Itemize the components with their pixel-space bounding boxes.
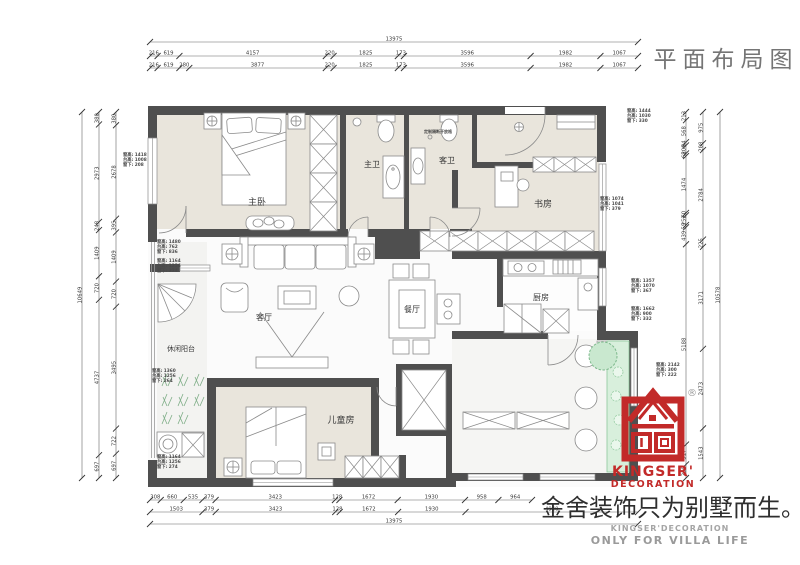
window-spec-note: 窗高: 2142台高: 300窗下: 222 xyxy=(656,361,680,378)
sink xyxy=(553,260,581,274)
svg-text:220: 220 xyxy=(325,51,336,57)
svg-text:568: 568 xyxy=(682,126,688,137)
svg-text:619: 619 xyxy=(163,63,173,69)
svg-text:1930: 1930 xyxy=(425,495,439,501)
brand-slogan: 金舍装饰只为别墅而生。 xyxy=(541,488,800,523)
svg-text:1067: 1067 xyxy=(612,63,625,69)
window-spec-note: 窗高: 1662台高: 900窗下: 332 xyxy=(631,305,655,322)
room-label: 主卧 xyxy=(248,196,266,208)
svg-text:216: 216 xyxy=(149,63,160,69)
registered-mark: ® xyxy=(687,388,697,399)
armchair xyxy=(221,283,248,312)
svg-text:439: 439 xyxy=(682,231,688,241)
room-label: 休闲阳台 xyxy=(167,344,195,353)
svg-text:697: 697 xyxy=(112,461,118,471)
svg-text:379: 379 xyxy=(204,495,214,501)
svg-text:535: 535 xyxy=(188,495,198,501)
svg-text:1672: 1672 xyxy=(362,507,375,513)
chair xyxy=(393,340,409,354)
svg-text:173: 173 xyxy=(396,51,406,57)
chair xyxy=(413,340,429,354)
svg-text:379: 379 xyxy=(204,507,214,513)
svg-text:1543: 1543 xyxy=(699,446,705,459)
svg-text:2473: 2473 xyxy=(699,382,705,395)
svg-text:225: 225 xyxy=(699,238,705,248)
svg-text:10649: 10649 xyxy=(78,287,84,304)
svg-text:128: 128 xyxy=(332,507,343,513)
tv-console xyxy=(256,357,328,368)
brand-en-line2: ONLY FOR VILLA LIFE xyxy=(540,534,800,547)
window-spec-note: 窗高: 1074台高: 1041窗下: 379 xyxy=(600,195,624,212)
sideboard xyxy=(437,294,460,324)
svg-text:1474: 1474 xyxy=(682,177,688,191)
stool xyxy=(575,429,597,451)
floor-drain xyxy=(353,118,361,126)
svg-text:208: 208 xyxy=(699,141,705,152)
stove xyxy=(508,261,544,274)
svg-text:1067: 1067 xyxy=(612,51,625,57)
svg-text:958: 958 xyxy=(477,495,488,501)
svg-text:3596: 3596 xyxy=(461,51,475,57)
round-table xyxy=(339,286,359,306)
room-label: 客卫 xyxy=(439,155,455,165)
svg-text:3596: 3596 xyxy=(461,63,475,69)
svg-text:1825: 1825 xyxy=(359,51,372,57)
svg-text:2678: 2678 xyxy=(112,165,118,179)
window-spec-note: 窗高: 1164台高: 1256窗下: 274 xyxy=(157,257,181,274)
svg-text:1930: 1930 xyxy=(425,507,439,513)
svg-text:10578: 10578 xyxy=(716,286,722,303)
svg-text:380: 380 xyxy=(112,113,118,124)
floor-plan-page: 1397521661941572201825173359619821067216… xyxy=(0,0,800,565)
svg-text:13975: 13975 xyxy=(386,519,403,525)
sofa-back xyxy=(246,237,350,245)
svg-text:3171: 3171 xyxy=(699,291,705,304)
svg-text:720: 720 xyxy=(112,288,118,299)
svg-text:248: 248 xyxy=(95,220,101,231)
svg-text:975: 975 xyxy=(699,123,705,133)
svg-text:722: 722 xyxy=(112,436,118,446)
svg-text:660: 660 xyxy=(167,495,178,501)
brand-en-line1: KINGSER'DECORATION xyxy=(540,524,800,533)
svg-text:280: 280 xyxy=(179,63,190,69)
svg-text:68: 68 xyxy=(682,151,688,158)
window-spec-note: 窗高: 1444台高: 1030窗下: 330 xyxy=(627,107,651,124)
svg-text:59: 59 xyxy=(682,223,688,230)
svg-text:697: 697 xyxy=(95,462,101,472)
room-label: 儿童房 xyxy=(327,414,354,426)
svg-text:128: 128 xyxy=(332,495,343,501)
svg-text:720: 720 xyxy=(95,282,101,293)
brand-name: KINGSER' xyxy=(603,464,703,480)
svg-text:395: 395 xyxy=(112,220,118,230)
svg-text:4157: 4157 xyxy=(246,51,259,57)
room-label: 厨房 xyxy=(533,292,549,302)
svg-text:216: 216 xyxy=(149,51,160,57)
svg-text:3423: 3423 xyxy=(269,507,282,513)
svg-text:1409: 1409 xyxy=(112,250,118,263)
svg-text:1672: 1672 xyxy=(362,495,375,501)
svg-text:619: 619 xyxy=(163,51,173,57)
svg-text:308: 308 xyxy=(150,495,161,501)
window-spec-note: 窗高: 1480台高: 762窗下: 836 xyxy=(157,238,181,255)
svg-text:3423: 3423 xyxy=(269,495,282,501)
svg-text:3495: 3495 xyxy=(112,361,118,374)
window-spec-note: 窗高: 1164台高: 1256窗下: 274 xyxy=(157,453,181,470)
svg-text:220: 220 xyxy=(325,63,336,69)
svg-text:173: 173 xyxy=(396,63,406,69)
svg-text:964: 964 xyxy=(510,495,521,501)
room-label: 主卫 xyxy=(364,159,380,169)
stool xyxy=(575,387,597,409)
svg-text:1503: 1503 xyxy=(169,507,182,513)
svg-text:213: 213 xyxy=(682,111,688,121)
window-spec-note: 窗高: 1418台高: 1008窗下: 208 xyxy=(123,151,147,168)
room-label: 餐厅 xyxy=(404,305,420,314)
svg-text:13975: 13975 xyxy=(386,37,403,43)
svg-text:1982: 1982 xyxy=(559,63,572,69)
svg-text:1982: 1982 xyxy=(559,51,572,57)
room-label: 客厅 xyxy=(256,312,272,322)
window-spec-note: 窗高: 1357台高: 1070窗下: 367 xyxy=(631,277,655,294)
window-spec-note: 窗高: 1360台高: 1256窗下: 264 xyxy=(152,367,176,384)
partition-note: 定制隔断开放格 xyxy=(423,128,453,134)
chair xyxy=(393,264,409,278)
svg-text:380: 380 xyxy=(95,113,101,124)
svg-text:2784: 2784 xyxy=(699,187,705,201)
svg-text:2973: 2973 xyxy=(95,166,101,179)
chair xyxy=(413,264,429,278)
svg-text:1409: 1409 xyxy=(95,246,101,259)
svg-text:1825: 1825 xyxy=(359,63,372,69)
tree-symbol xyxy=(589,342,617,370)
kingser-logo-icon xyxy=(625,392,681,458)
svg-text:3877: 3877 xyxy=(251,63,264,69)
room-label: 书房 xyxy=(534,198,552,210)
page-title: 平面布局图 xyxy=(652,40,800,74)
svg-text:5188: 5188 xyxy=(682,337,688,351)
svg-text:4737: 4737 xyxy=(95,371,101,384)
chair xyxy=(517,179,529,191)
